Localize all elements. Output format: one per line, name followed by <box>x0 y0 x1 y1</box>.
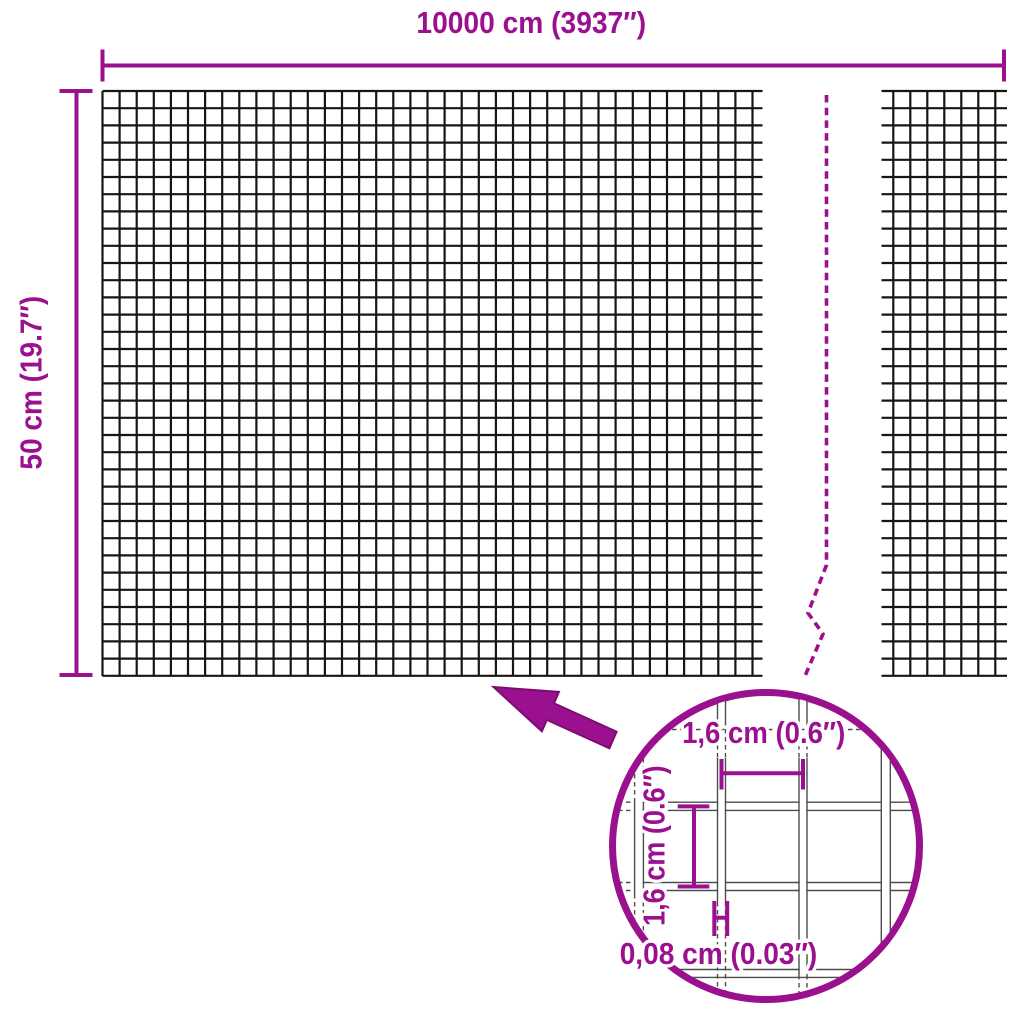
svg-text:1,6 cm (0.6″): 1,6 cm (0.6″) <box>682 717 845 750</box>
svg-text:0,08 cm (0.03″): 0,08 cm (0.03″) <box>620 938 818 971</box>
svg-text:50 cm (19.7″): 50 cm (19.7″) <box>16 296 49 470</box>
svg-text:1,6 cm (0.6″): 1,6 cm (0.6″) <box>639 765 672 926</box>
svg-text:10000 cm (3937″): 10000 cm (3937″) <box>416 7 646 40</box>
